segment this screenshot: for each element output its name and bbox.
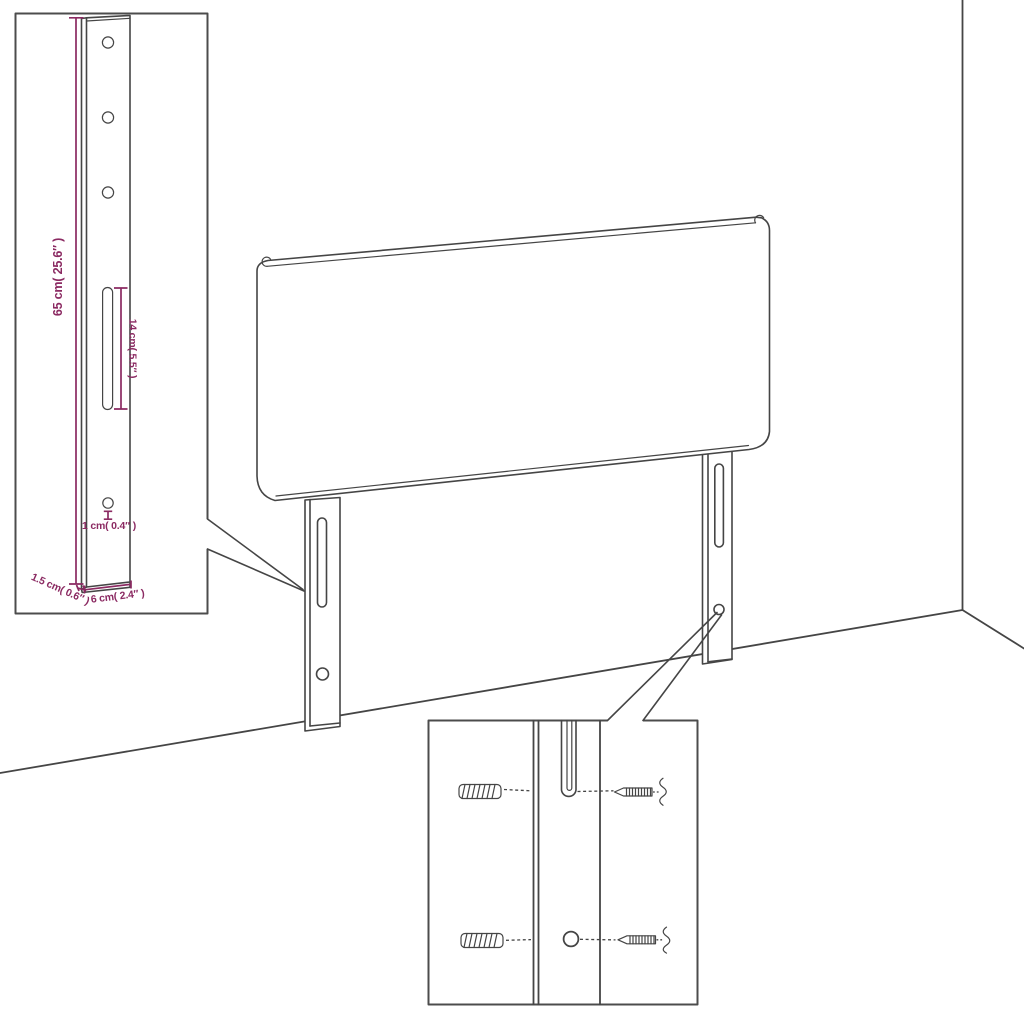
hole-closeup [564, 932, 579, 947]
floor-line-right [963, 610, 1024, 649]
headboard-panel [257, 215, 770, 500]
bracket-hole-1 [102, 37, 113, 48]
wall-plug-icon-bottom [461, 934, 503, 948]
bracket-drawing [82, 16, 131, 593]
left-leg [305, 498, 340, 732]
left-leg-hole [317, 668, 329, 680]
wall-plug-icon-top [459, 785, 501, 799]
right-leg [703, 447, 733, 664]
dimension-height-label: 65 cm( 25.6″ ) [51, 238, 65, 316]
diagram-svg: 65 cm( 25.6″ ) 14 cm( 5.5″ ) 1 cm( 0.4″ … [0, 0, 1024, 1024]
bracket-hole-3 [102, 187, 113, 198]
left-leg-slot [318, 518, 327, 607]
right-leg-slot [715, 464, 724, 547]
callout-wedge-left [208, 519, 305, 591]
inset-border [429, 721, 698, 1005]
product-diagram: 65 cm( 25.6″ ) 14 cm( 5.5″ ) 1 cm( 0.4″ … [0, 0, 1024, 1024]
dimension-slot-label: 14 cm( 5.5″ ) [127, 319, 139, 379]
bracket-hole-bottom [103, 498, 113, 508]
fastener-inset [429, 613, 722, 1005]
bracket-hole-2 [102, 112, 113, 123]
dimension-hole-label: 1 cm( 0.4″ ) [82, 520, 136, 532]
bracket-slot [103, 288, 113, 410]
